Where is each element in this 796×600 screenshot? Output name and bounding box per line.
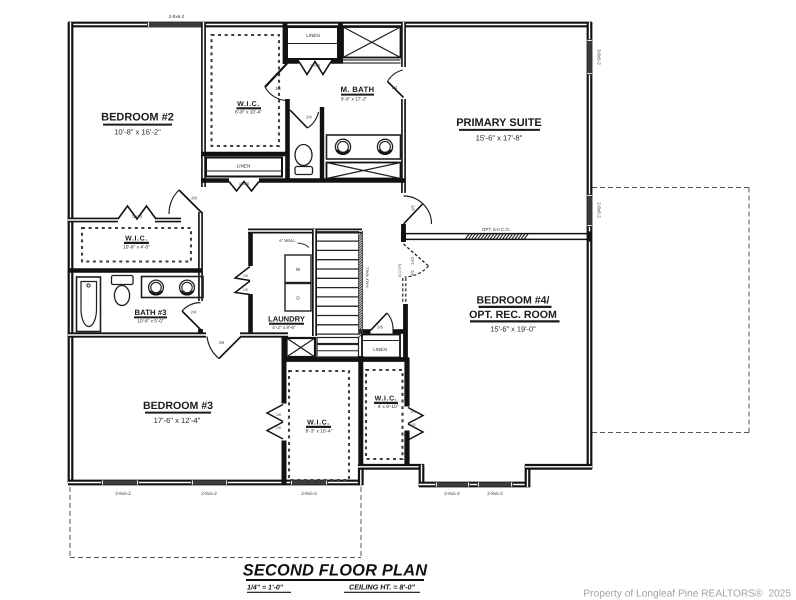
svg-text:LINEN: LINEN	[306, 33, 320, 38]
svg-text:10'-8" x 5'-0": 10'-8" x 5'-0"	[137, 319, 164, 324]
svg-text:W.I.C.: W.I.C.	[375, 396, 398, 403]
svg-text:Property of Longleaf Pine REAL: Property of Longleaf Pine REALTORS® 2025	[583, 589, 791, 600]
svg-text:2-8x6-2: 2-8x6-2	[169, 14, 185, 19]
svg-text:15'-6" x 17'-8": 15'-6" x 17'-8"	[476, 134, 523, 143]
svg-text:2-8x5-2: 2-8x5-2	[487, 491, 503, 496]
svg-text:2-8x5-2: 2-8x5-2	[444, 491, 460, 496]
svg-text:2/4: 2/4	[191, 310, 197, 315]
svg-text:9'-8" x 17'-2": 9'-8" x 17'-2"	[341, 97, 368, 102]
svg-text:2-8x5-2: 2-8x5-2	[115, 491, 131, 496]
svg-text:1B0/S: 1B0/S	[239, 182, 250, 186]
svg-text:W.I.C.: W.I.C.	[237, 101, 260, 108]
svg-text:LINEN: LINEN	[237, 164, 251, 169]
svg-text:LINEN: LINEN	[373, 347, 387, 352]
svg-text:BEDROOM #3: BEDROOM #3	[143, 400, 213, 412]
svg-text:OPT. 5-0 C.O.: OPT. 5-0 C.O.	[482, 227, 510, 232]
svg-text:CEILING HT. = 8'-0": CEILING HT. = 8'-0"	[349, 583, 415, 592]
svg-text:2/6: 2/6	[411, 205, 416, 211]
svg-text:1/6: 1/6	[410, 423, 415, 427]
svg-text:BEDROOM #2: BEDROOM #2	[101, 112, 174, 124]
svg-text:BEDROOM #4/: BEDROOM #4/	[477, 295, 550, 307]
svg-text:LAUNDRY: LAUNDRY	[268, 315, 305, 324]
svg-text:2/4: 2/4	[275, 86, 281, 91]
svg-text:1/6: 1/6	[276, 426, 281, 430]
svg-text:PRIMARY SUITE: PRIMARY SUITE	[456, 117, 542, 129]
svg-text:W.I.C.: W.I.C.	[125, 236, 148, 243]
svg-text:5-0 C.O.: 5-0 C.O.	[398, 264, 402, 278]
svg-text:M. BATH: M. BATH	[340, 85, 374, 94]
svg-text:6" WALL: 6" WALL	[279, 238, 296, 243]
svg-text:2-8x5-2: 2-8x5-2	[301, 491, 317, 496]
svg-text:HALF WALL: HALF WALL	[366, 267, 370, 288]
svg-text:1/4" = 1'-0": 1/4" = 1'-0"	[247, 584, 284, 592]
svg-text:2/4: 2/4	[306, 115, 312, 120]
svg-text:SECOND FLOOR PLAN: SECOND FLOOR PLAN	[243, 562, 429, 580]
svg-text:BATH #3: BATH #3	[135, 308, 168, 317]
svg-text:17'-6" x 12'-4": 17'-6" x 12'-4"	[154, 416, 201, 425]
svg-text:1B0/S: 1B0/S	[310, 64, 321, 68]
svg-text:2/6: 2/6	[410, 270, 415, 276]
svg-text:10'-8" x 4'-0": 10'-8" x 4'-0"	[123, 245, 150, 251]
svg-text:1/6: 1/6	[243, 288, 248, 292]
svg-text:1/6: 1/6	[276, 413, 281, 417]
svg-text:15'-6" x 19'-0": 15'-6" x 19'-0"	[490, 325, 536, 334]
svg-text:6'-8" x 10'-4": 6'-8" x 10'-4"	[235, 110, 262, 116]
svg-text:W.I.C.: W.I.C.	[307, 420, 330, 427]
svg-text:OPT.: OPT.	[410, 257, 414, 265]
svg-text:1/6: 1/6	[410, 410, 415, 414]
svg-text:2/6: 2/6	[377, 325, 383, 330]
svg-text:OPT. REC. ROOM: OPT. REC. ROOM	[469, 309, 557, 321]
svg-text:10'-8" x 16'-2": 10'-8" x 16'-2"	[114, 128, 161, 137]
svg-text:3-8x5-2: 3-8x5-2	[597, 49, 602, 65]
svg-text:2-8x5-2: 2-8x5-2	[201, 491, 217, 496]
svg-text:5'-2" x 8'-6": 5'-2" x 8'-6"	[272, 325, 296, 330]
svg-text:1B0/S: 1B0/S	[132, 214, 143, 219]
svg-text:2/6: 2/6	[219, 340, 225, 345]
svg-text:2/4: 2/4	[392, 85, 398, 90]
svg-text:W: W	[296, 267, 301, 272]
svg-text:2-8x6-2: 2-8x6-2	[597, 202, 602, 218]
svg-text:1/6: 1/6	[243, 274, 248, 278]
svg-text:2/6: 2/6	[191, 196, 197, 201]
svg-text:6'-3" x 10'-4": 6'-3" x 10'-4"	[306, 429, 333, 435]
svg-text:4' x 8'-10": 4' x 8'-10"	[378, 404, 399, 410]
